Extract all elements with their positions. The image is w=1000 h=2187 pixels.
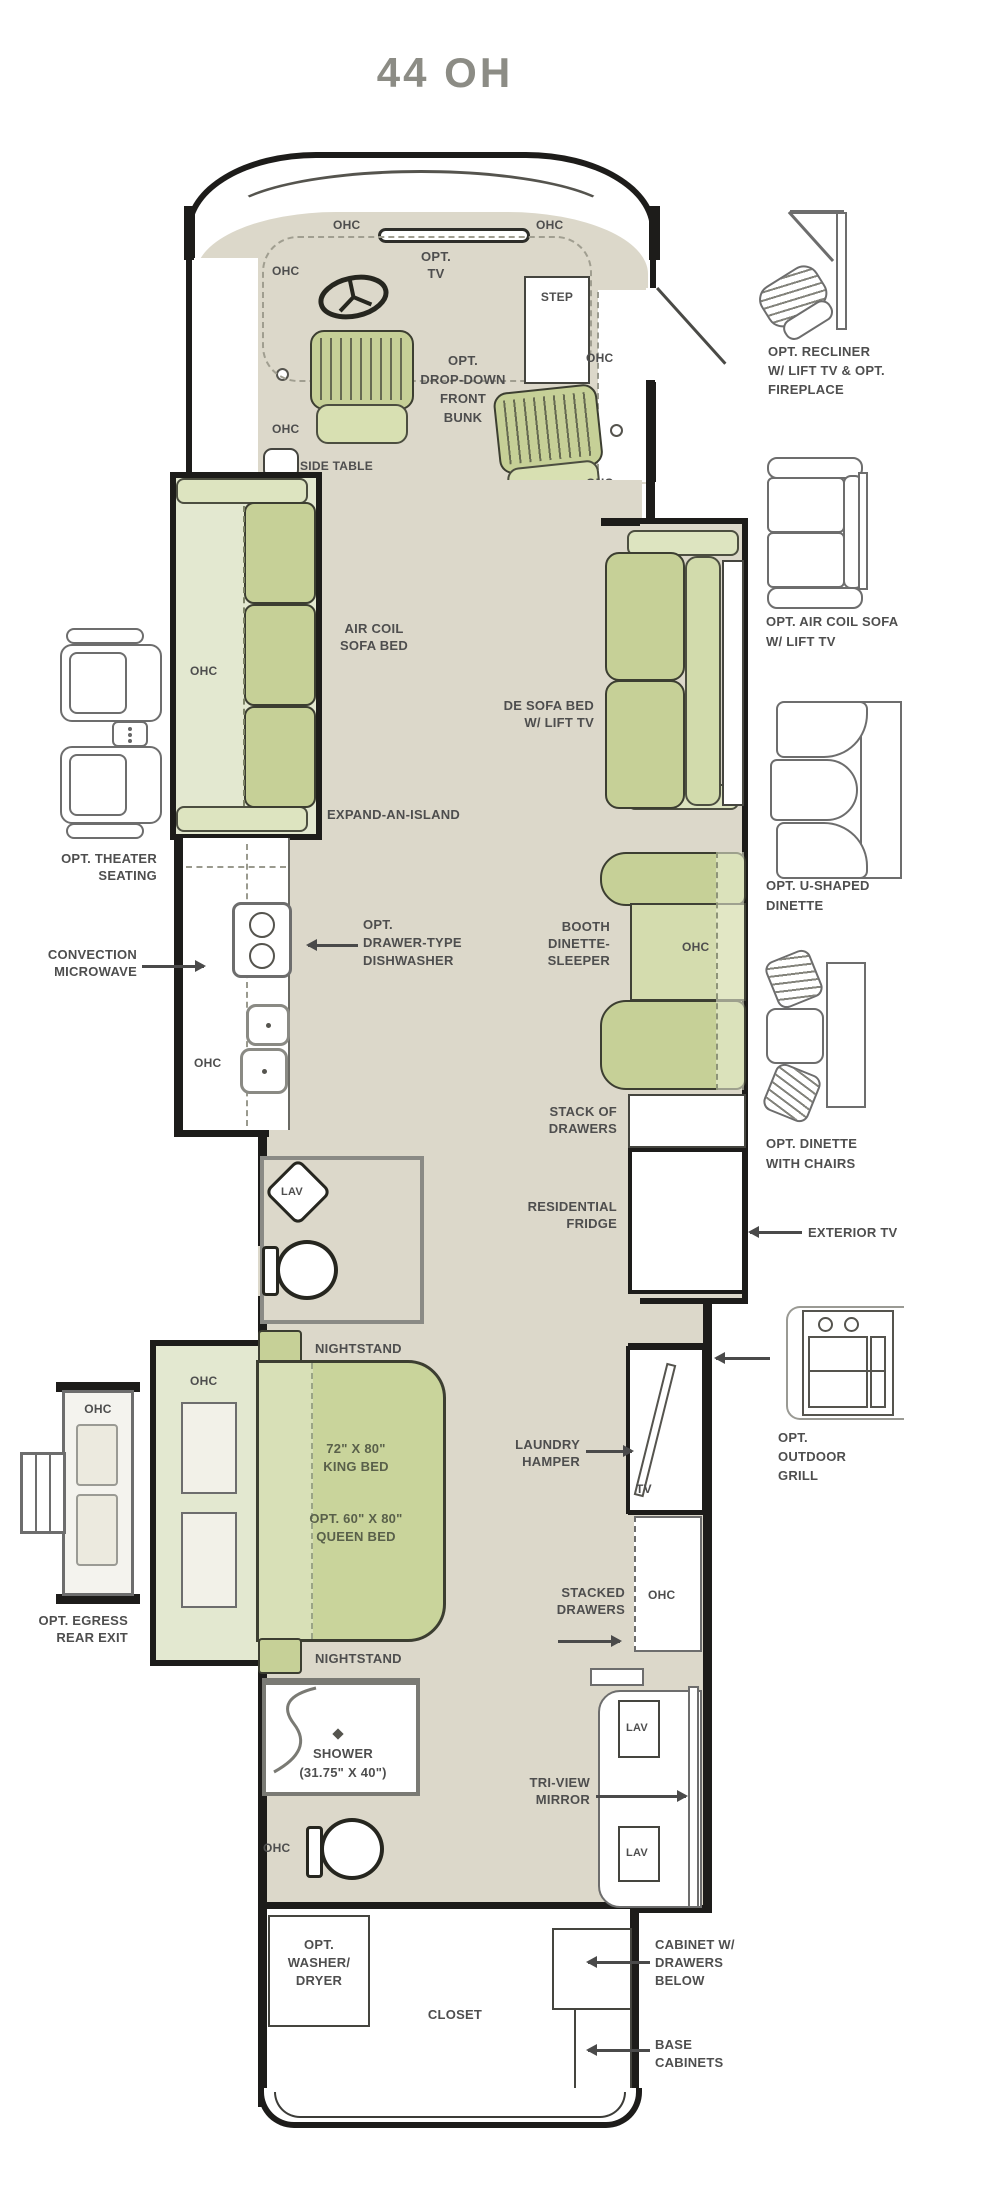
- line: EXPAND-AN-ISLAND: [327, 806, 460, 823]
- booth-dinette-label: BOOTHDINETTE-SLEEPER: [520, 918, 610, 969]
- wall-right-jog-v: [703, 1296, 712, 1350]
- line: W/ LIFT TV: [460, 714, 594, 731]
- line: WASHER/: [268, 1954, 370, 1972]
- sink-icon-2: [240, 1048, 288, 1094]
- line: DE SOFA BED: [460, 697, 594, 714]
- dishwasher-label: OPT.DRAWER-TYPEDISHWASHER: [363, 916, 462, 970]
- tri-view-mirror-label: TRI-VIEWMIRROR: [495, 1774, 590, 1808]
- line: OHC: [68, 1402, 128, 1417]
- rv-floorplan: 44 OH STEP OHC OHC OHC OHC OHC OHC OPT: [0, 0, 1000, 2187]
- line: (31.75" X 40"): [270, 1763, 416, 1782]
- kitchen-counter-line: [186, 866, 286, 868]
- line: STACKED: [535, 1584, 625, 1601]
- toilet-icon-mid: [276, 1240, 338, 1300]
- line: SLEEPER: [520, 952, 610, 969]
- grill-icon: [802, 1310, 894, 1416]
- base-cabinets-arrow-icon: [588, 2049, 650, 2052]
- line: OPT.: [398, 351, 528, 370]
- line: DINETTE: [766, 896, 870, 916]
- theater-seating-icon: [55, 624, 165, 846]
- line: OHC: [272, 422, 299, 437]
- vanity-lav-2-label: LAV: [626, 1847, 648, 1860]
- ohc-front-left: OHC: [333, 218, 360, 233]
- line: CONVECTION: [9, 946, 137, 963]
- line: STEP: [524, 290, 590, 305]
- wall-front-right: [646, 380, 655, 528]
- line: 72" X 80": [286, 1440, 426, 1458]
- sofa-left-armrest-bottom: [176, 806, 308, 832]
- line: BOOTH: [520, 918, 610, 935]
- ohc-rear-bath: OHC: [263, 1841, 290, 1856]
- line: CLOSET: [400, 2006, 510, 2023]
- line: LAV: [626, 1722, 648, 1735]
- line: DRYER: [268, 1972, 370, 1990]
- line: KING BED: [286, 1458, 426, 1476]
- sofa-left-armrest-top: [176, 478, 308, 504]
- de-sofa-cushion-2: [605, 680, 685, 809]
- ohc-living-slide: OHC: [190, 664, 217, 679]
- line: OPT. DINETTE: [766, 1134, 857, 1154]
- tv-label: TV: [636, 1482, 652, 1497]
- line: TV: [636, 1482, 652, 1497]
- sofa-left-cushion-2: [244, 604, 316, 706]
- wardrobe-1: [181, 1402, 237, 1494]
- toilet-icon-rear: [320, 1818, 384, 1880]
- dishwasher-arrow-icon: [308, 944, 358, 947]
- exterior-tv-label: EXTERIOR TV: [808, 1224, 897, 1241]
- rear-cap-line: [274, 2092, 626, 2118]
- line: OPT.: [363, 916, 462, 934]
- line: TRI-VIEW: [495, 1774, 590, 1791]
- line: CABINETS: [655, 2054, 723, 2072]
- line: OUTDOOR: [778, 1447, 846, 1466]
- dinette-chairs-icon: [764, 952, 908, 1122]
- sink-icon-1: [246, 1004, 290, 1046]
- line: OHC: [194, 1056, 221, 1071]
- line: FIREPLACE: [768, 380, 885, 399]
- line: SEATING: [30, 867, 157, 884]
- line: NIGHTSTAND: [315, 1340, 402, 1357]
- egress-window-icon: [20, 1452, 66, 1534]
- wall-closet-threshold: [262, 1902, 640, 1909]
- line: GRILL: [778, 1466, 846, 1485]
- line: OHC: [648, 1588, 675, 1603]
- u-dinette-icon: [768, 698, 908, 884]
- cab-left-cabinet: [194, 258, 258, 482]
- cooktop-icon: [232, 902, 292, 978]
- grill-label: OPT.OUTDOORGRILL: [778, 1428, 846, 1485]
- shower-label: SHOWER(31.75" X 40"): [270, 1744, 416, 1782]
- line: OPT. AIR COIL SOFA: [766, 612, 898, 632]
- ohc-cab-right-upper: OHC: [586, 351, 613, 366]
- line: REAR EXIT: [8, 1629, 128, 1646]
- cabinet-drawers-arrow-icon: [588, 1961, 650, 1964]
- washer-dryer-label: OPT.WASHER/DRYER: [268, 1936, 370, 1990]
- expand-an-island-label: EXPAND-AN-ISLAND: [327, 806, 460, 823]
- line: OPT. THEATER: [30, 850, 157, 867]
- entry-door-gap: [646, 288, 660, 382]
- line: OPT. 60" X 80": [276, 1510, 436, 1528]
- ohc-bedroom-cabinet: OHC: [648, 1588, 675, 1603]
- ohc-bedroom-slide: OHC: [190, 1374, 217, 1389]
- de-sofa-label: DE SOFA BEDW/ LIFT TV: [460, 697, 594, 731]
- line: OHC: [586, 351, 613, 366]
- nightstand-top-label: NIGHTSTAND: [315, 1340, 402, 1357]
- line: WITH CHAIRS: [766, 1154, 857, 1174]
- line: OPT. EGRESS: [8, 1612, 128, 1629]
- line: BUNK: [398, 408, 528, 427]
- line: RESIDENTIAL: [500, 1198, 617, 1215]
- residential-fridge: [628, 1148, 746, 1294]
- cab-right-knob: [610, 424, 623, 437]
- sofa-left-cushion-1: [244, 502, 316, 604]
- air-coil-sofa-label: AIR COILSOFA BED: [328, 620, 420, 654]
- rear-cabinet-box: [552, 1928, 632, 2010]
- de-sofa-lift-tv-cabinet: [722, 560, 744, 806]
- egress-label: OPT. EGRESSREAR EXIT: [8, 1612, 128, 1646]
- line: OHC: [190, 664, 217, 679]
- line: DINETTE-: [520, 935, 610, 952]
- nightstand-bottom: [258, 1638, 302, 1674]
- fireplace-diagonal: [788, 211, 834, 262]
- tri-view-arrow-icon: [596, 1795, 686, 1798]
- vanity-lav-1-label: LAV: [626, 1722, 648, 1735]
- base-cabinet-box: [574, 2008, 632, 2096]
- a-pillar-left: [184, 206, 195, 260]
- king-bed-label: 72" X 80"KING BED: [286, 1440, 426, 1476]
- microwave-arrow-icon: [142, 965, 204, 968]
- line: FRONT: [398, 389, 528, 408]
- opt-tv-label: OPT.TV: [390, 248, 482, 282]
- line: BELOW: [655, 1972, 735, 1990]
- line: CABINET W/: [655, 1936, 735, 1954]
- tri-view-mirror-strip: [688, 1686, 699, 1908]
- line: DRAWER-TYPE: [363, 934, 462, 952]
- line: OHC: [272, 264, 299, 279]
- sofa-left-cushion-3: [244, 706, 316, 808]
- line: SOFA BED: [328, 637, 420, 654]
- laundry-arrow-icon: [586, 1450, 632, 1453]
- line: DROP-DOWN: [398, 370, 528, 389]
- line: AIR COIL: [328, 620, 420, 637]
- line: OHC: [190, 1374, 217, 1389]
- ohc-cab-left-lower: OHC: [272, 422, 299, 437]
- recliner-label: OPT. RECLINERW/ LIFT TV & OPT.FIREPLACE: [768, 342, 885, 399]
- line: NIGHTSTAND: [315, 1650, 402, 1667]
- bedroom-ohc-cabinet: [634, 1516, 702, 1652]
- laundry-hamper-label: LAUNDRYHAMPER: [490, 1436, 580, 1470]
- stack-of-drawers-label: STACK OFDRAWERS: [525, 1103, 617, 1137]
- stacked-drawers-arrow-icon: [558, 1640, 620, 1643]
- ohc-kitchen: OHC: [194, 1056, 221, 1071]
- line: OPT.: [778, 1428, 846, 1447]
- sofa-left-back-line: [243, 506, 245, 806]
- line: LAV: [626, 1847, 648, 1860]
- line: OPT.: [390, 248, 482, 265]
- air-coil-sofa-option-icon: [764, 454, 908, 614]
- egress-panel-1: [76, 1424, 118, 1486]
- base-cabinets-label: BASECABINETS: [655, 2036, 723, 2072]
- stack-of-drawers: [628, 1094, 746, 1148]
- bed-pillow-area: [259, 1363, 313, 1639]
- cabinet-drawers-label: CABINET W/DRAWERSBELOW: [655, 1936, 735, 1990]
- residential-fridge-label: RESIDENTIALFRIDGE: [500, 1198, 617, 1232]
- exterior-tv-arrow-icon: [750, 1231, 802, 1234]
- vanity-shelf: [590, 1668, 644, 1686]
- nightstand-bottom-label: NIGHTSTAND: [315, 1650, 402, 1667]
- line: FRIDGE: [500, 1215, 617, 1232]
- line: DRAWERS: [535, 1601, 625, 1618]
- line: OPT. RECLINER: [768, 342, 885, 361]
- line: W/ LIFT TV: [766, 632, 898, 652]
- line: MIRROR: [495, 1791, 590, 1808]
- line: OHC: [263, 1841, 290, 1856]
- de-sofa-cushion-1: [605, 552, 685, 681]
- line: SHOWER: [270, 1744, 416, 1763]
- dinette-chairs-label: OPT. DINETTEWITH CHAIRS: [766, 1134, 857, 1174]
- line: LAUNDRY: [490, 1436, 580, 1453]
- plan-title: 44 OH: [280, 50, 610, 96]
- a-pillar-right: [649, 206, 660, 260]
- line: STACK OF: [525, 1103, 617, 1120]
- line: EXTERIOR TV: [808, 1224, 897, 1241]
- line: TV: [390, 265, 482, 282]
- egress-panel-2: [76, 1494, 118, 1566]
- entry-door-swing: [656, 287, 726, 365]
- air-coil-sofa-option-label: OPT. AIR COIL SOFAW/ LIFT TV: [766, 612, 898, 652]
- line: HAMPER: [490, 1453, 580, 1470]
- de-sofa-back: [685, 556, 721, 806]
- booth-ohc-strip: [716, 852, 744, 1090]
- line: LAV: [281, 1186, 303, 1199]
- line: DISHWASHER: [363, 952, 462, 970]
- line: OHC: [682, 940, 709, 955]
- grill-arrow-icon: [716, 1357, 770, 1360]
- nightstand-top: [258, 1330, 302, 1364]
- exterior-notch-bath: [186, 1137, 258, 1347]
- cab-right-cabinet: [598, 290, 648, 482]
- exterior-notch-rear: [186, 1666, 258, 2106]
- line: BASE: [655, 2036, 723, 2054]
- ohc-front-right: OHC: [536, 218, 563, 233]
- line: QUEEN BED: [276, 1528, 436, 1546]
- recliner-icon: [753, 259, 843, 348]
- line: OHC: [333, 218, 360, 233]
- ohc-cab-left-upper: OHC: [272, 264, 299, 279]
- step-label: STEP: [524, 290, 590, 305]
- convection-microwave-label: CONVECTIONMICROWAVE: [9, 946, 137, 980]
- wardrobe-2: [181, 1512, 237, 1608]
- line: OHC: [536, 218, 563, 233]
- wall-kitchen-left: [174, 836, 183, 1136]
- closet-label: CLOSET: [400, 2006, 510, 2023]
- ohc-egress: OHC: [68, 1402, 128, 1417]
- drop-down-bunk-label: OPT.DROP-DOWNFRONTBUNK: [398, 351, 528, 427]
- line: OPT. U-SHAPED: [766, 876, 870, 896]
- stacked-drawers-label: STACKEDDRAWERS: [535, 1584, 625, 1618]
- ohc-booth: OHC: [682, 940, 709, 955]
- line: DRAWERS: [655, 1954, 735, 1972]
- line: MICROWAVE: [9, 963, 137, 980]
- line: OPT.: [268, 1936, 370, 1954]
- theater-seating-label: OPT. THEATERSEATING: [30, 850, 157, 884]
- lav-diamond-label: LAV: [281, 1186, 303, 1199]
- line: DRAWERS: [525, 1120, 617, 1137]
- line: W/ LIFT TV & OPT.: [768, 361, 885, 380]
- u-dinette-label: OPT. U-SHAPEDDINETTE: [766, 876, 870, 916]
- queen-bed-label: OPT. 60" X 80"QUEEN BED: [276, 1510, 436, 1546]
